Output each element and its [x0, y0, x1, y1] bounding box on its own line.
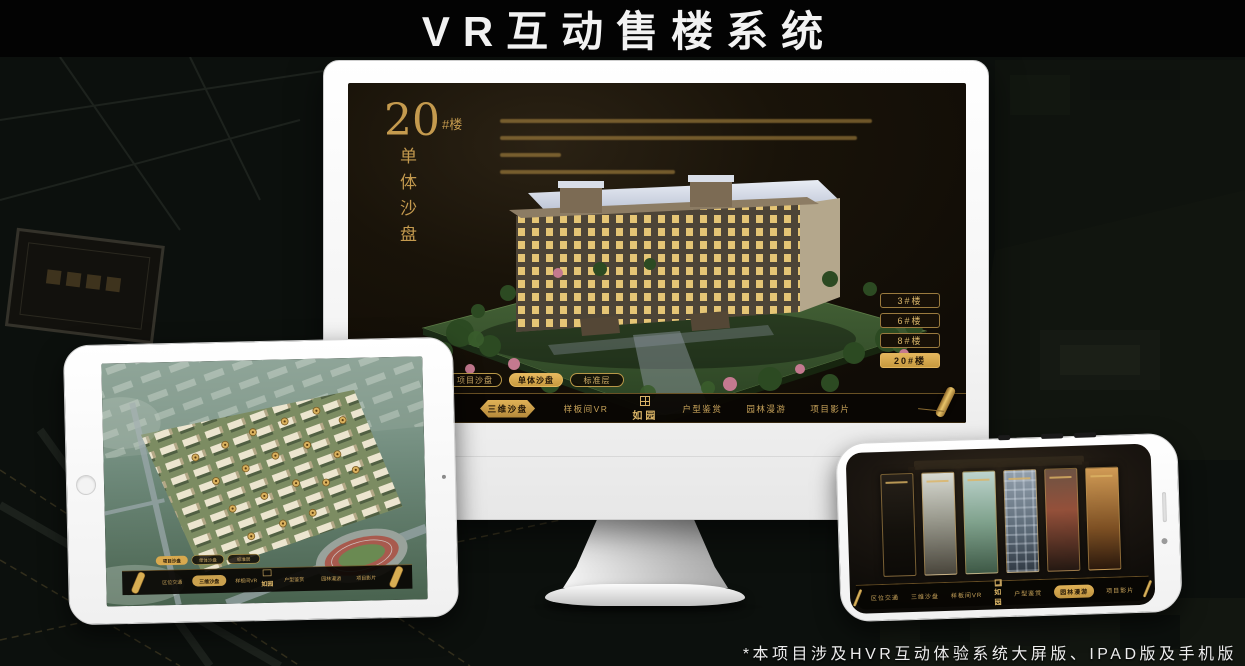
- heading-vertical: 单体沙盘: [394, 147, 419, 267]
- phone-nav-garden[interactable]: 园林漫游: [1054, 584, 1094, 598]
- tablet-nav-sandtable[interactable]: 三维沙盘: [199, 578, 219, 585]
- nav-item-showroom-vr[interactable]: 样板间VR: [564, 403, 609, 415]
- tablet-nav-garden[interactable]: 园林漫游: [321, 575, 341, 582]
- phone-nav-film[interactable]: 项目影片: [1106, 585, 1134, 595]
- phone-speaker-icon: [1162, 492, 1167, 522]
- sub-tab-group: 项目沙盘 单体沙盘 标准层: [448, 373, 624, 387]
- nav-item-garden-tour[interactable]: 园林漫游: [746, 403, 786, 415]
- logo-seal-icon: [640, 396, 650, 406]
- gallery-card-5[interactable]: [1044, 468, 1080, 572]
- phone-power-button[interactable]: [998, 435, 1010, 440]
- floor-button-3[interactable]: 3#楼: [880, 293, 940, 308]
- screen-heading: 20#楼 单体沙盘: [384, 99, 462, 267]
- logo-text: 如园: [632, 407, 658, 422]
- floor-button-6[interactable]: 6#楼: [880, 313, 940, 328]
- nav-item-unit-plans[interactable]: 户型鉴赏: [682, 403, 722, 415]
- phone-nav-bar: 区位交通 三维沙盘 样板间VR 如园 户型鉴赏 园林漫游 项目影片: [856, 576, 1150, 610]
- footnote: *本项目涉及HVR互动体验系统大屏版、IPAD版及手机版: [743, 640, 1237, 664]
- tablet-device: 项目沙盘 单体沙盘 标准层 区位交通 三维沙盘 样板间VR: [63, 337, 459, 626]
- tablet-nav-location[interactable]: 区位交通: [162, 579, 182, 586]
- brand-logo: 如园: [632, 396, 658, 422]
- nav-item-project-film[interactable]: 项目影片: [810, 403, 850, 415]
- floor-button-group: 3#楼 6#楼 8#楼 20#楼: [880, 293, 940, 368]
- building-unit: #楼: [442, 117, 462, 132]
- gallery-card-4[interactable]: [1003, 469, 1039, 573]
- phone-screen: 区位交通 三维沙盘 样板间VR 如园 户型鉴赏 园林漫游 项目影片: [846, 444, 1156, 615]
- phone-volume-down-button[interactable]: [1074, 432, 1096, 438]
- sub-tab-project[interactable]: 项目沙盘: [448, 373, 502, 387]
- gallery-card-1[interactable]: [880, 473, 916, 577]
- tablet-camera-icon: [442, 475, 446, 479]
- phone-scroll-icon-right: [1143, 580, 1152, 598]
- floor-button-8[interactable]: 8#楼: [880, 333, 940, 348]
- phone-camera-icon: [1161, 538, 1167, 544]
- gallery-card-2[interactable]: [921, 472, 957, 576]
- phone-nav-showroom[interactable]: 样板间VR: [951, 589, 983, 599]
- gallery-card-6[interactable]: [1085, 467, 1121, 571]
- monitor-stand-base: [545, 584, 745, 606]
- tablet-aerial-view: 项目沙盘 单体沙盘 标准层 区位交通 三维沙盘 样板间VR: [101, 356, 427, 606]
- sub-tab-single[interactable]: 单体沙盘: [509, 373, 563, 387]
- phone-logo: 如园: [994, 579, 1003, 607]
- building-number: 20: [384, 99, 440, 143]
- tablet-nav-showroom[interactable]: 样板间VR: [235, 577, 257, 585]
- tablet-logo: 如园: [261, 580, 273, 588]
- title-bar: VR互动售楼系统: [0, 0, 1245, 57]
- nav-item-sandtable[interactable]: 三维沙盘: [476, 400, 540, 418]
- tablet-home-button[interactable]: [76, 475, 96, 495]
- description-paragraph: [500, 119, 880, 187]
- gallery-card-row: [880, 467, 1121, 577]
- sub-tab-floor[interactable]: 标准层: [570, 373, 624, 387]
- phone-scroll-icon-left: [853, 589, 862, 607]
- phone-volume-up-button[interactable]: [1041, 433, 1063, 439]
- tablet-screen: 项目沙盘 单体沙盘 标准层 区位交通 三维沙盘 样板间VR: [101, 356, 427, 606]
- page-title: VR互动售楼系统: [409, 0, 836, 59]
- phone-nav-sandtable[interactable]: 三维沙盘: [911, 591, 939, 601]
- phone-nav-units[interactable]: 户型鉴赏: [1014, 587, 1042, 597]
- phone-logo-seal-icon: [994, 579, 1001, 586]
- gallery-card-3[interactable]: [962, 470, 998, 574]
- tablet-nav-film[interactable]: 项目影片: [356, 574, 376, 581]
- tablet-nav-units[interactable]: 户型鉴赏: [284, 576, 304, 583]
- phone-device: 区位交通 三维沙盘 样板间VR 如园 户型鉴赏 园林漫游 项目影片: [835, 433, 1182, 623]
- floor-button-20[interactable]: 20#楼: [880, 353, 940, 368]
- phone-nav-location[interactable]: 区位交通: [871, 592, 899, 602]
